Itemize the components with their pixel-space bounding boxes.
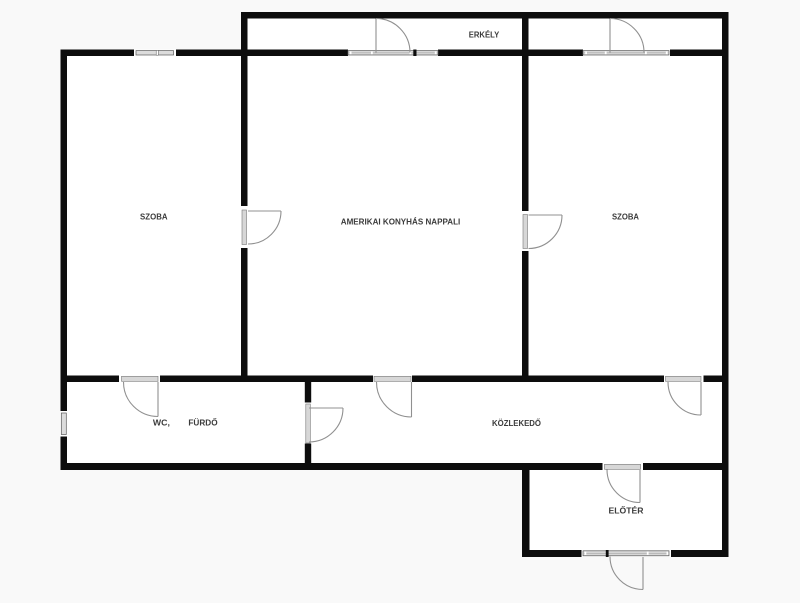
svg-text:SZOBA: SZOBA — [612, 212, 639, 222]
svg-text:ELŐTÉR: ELŐTÉR — [609, 505, 644, 516]
svg-text:KÖZLEKEDŐ: KÖZLEKEDŐ — [492, 417, 541, 428]
svg-text:ERKÉLY: ERKÉLY — [469, 30, 500, 40]
svg-text:AMERIKAI KONYHÁS NAPPALI: AMERIKAI KONYHÁS NAPPALI — [341, 217, 461, 227]
svg-text:WC,: WC, — [153, 418, 170, 428]
svg-text:SZOBA: SZOBA — [140, 212, 168, 222]
svg-text:FÜRDŐ: FÜRDŐ — [188, 417, 218, 428]
